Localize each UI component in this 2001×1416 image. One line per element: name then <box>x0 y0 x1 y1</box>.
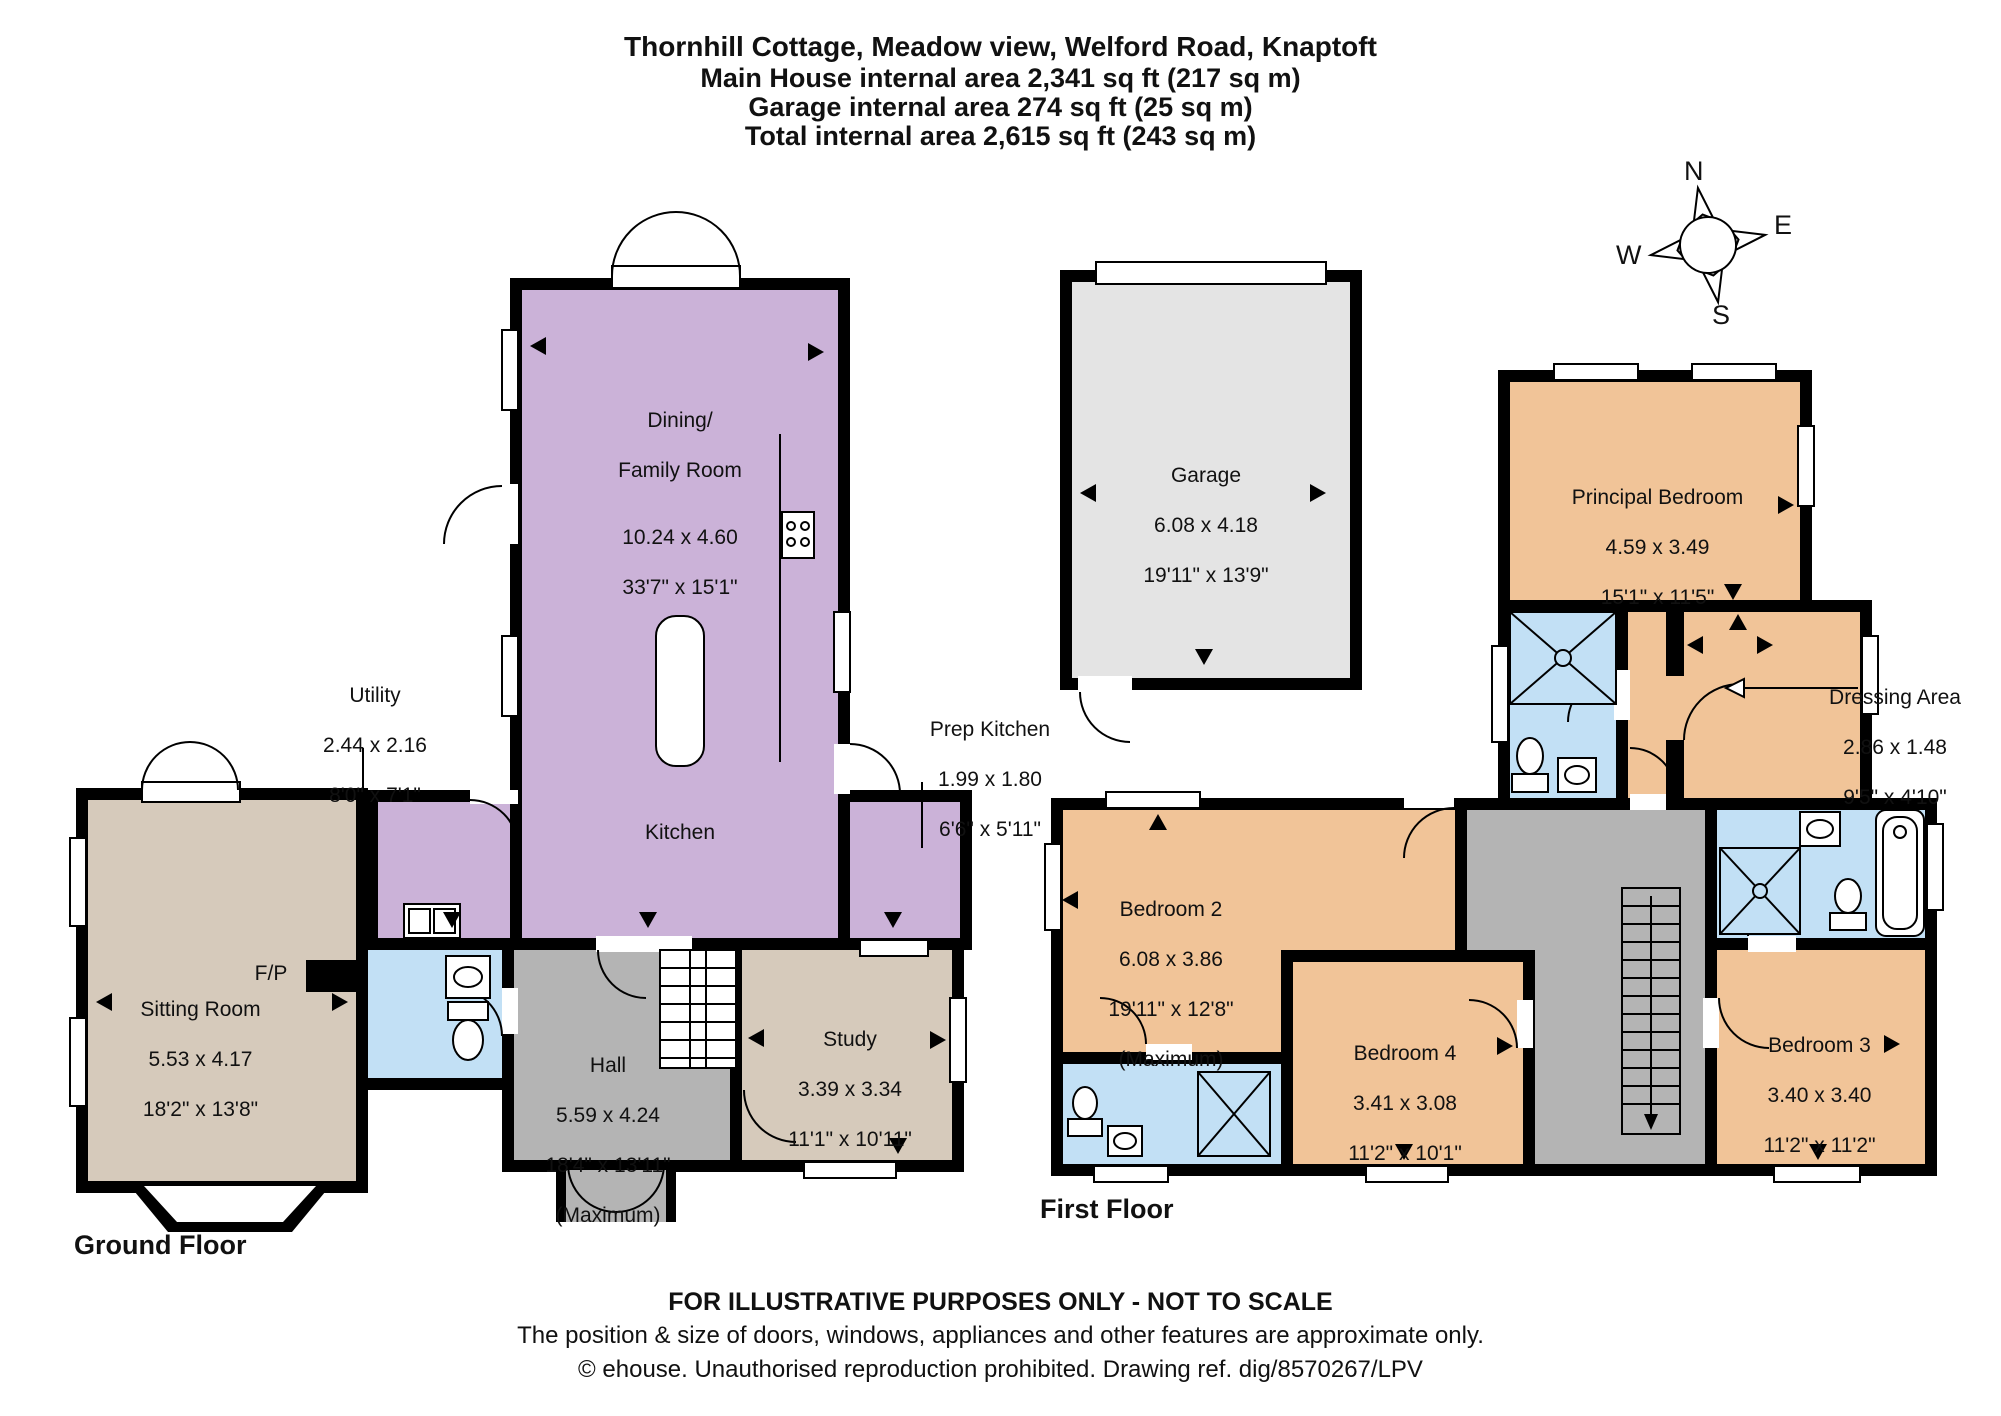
disclaimer-text: The position & size of doors, windows, a… <box>0 1322 2001 1350</box>
label-bedroom4: Bedroom 4 3.41 x 3.08 11'2" x 10'1" <box>1290 1016 1520 1191</box>
door-arc <box>1684 684 1740 740</box>
label-prep-kitchen: Prep Kitchen 1.99 x 1.80 6'6" x 5'11" <box>845 692 1135 867</box>
label-principal-bedroom: Principal Bedroom 4.59 x 3.49 15'1" x 11… <box>1515 460 1800 635</box>
window-icon <box>1927 824 1943 910</box>
label-dining: Dining/ Family Room <box>560 383 800 508</box>
label-fireplace: F/P <box>238 936 304 1011</box>
basin-icon <box>1558 758 1596 792</box>
door-arc <box>1404 808 1454 858</box>
disclaimer-title: FOR ILLUSTRATIVE PURPOSES ONLY - NOT TO … <box>0 1288 2001 1317</box>
door-arc <box>598 950 646 998</box>
label-bedroom2: Bedroom 2 6.08 x 3.86 19'11" x 12'8" (Ma… <box>1056 872 1286 1097</box>
stairs-first <box>1622 888 1680 1134</box>
label-study: Study 3.39 x 3.34 11'1" x 10'11" <box>740 1002 960 1177</box>
arrow-left-icon <box>530 337 546 355</box>
arrow-down-icon <box>639 912 657 928</box>
arrow-up-icon <box>1149 814 1167 830</box>
window-icon <box>1492 646 1508 742</box>
shower-room-fixtures <box>1510 612 1616 792</box>
label-dressing-area: Dressing Area 2.86 x 1.48 9'5" x 4'10" <box>1790 660 2000 835</box>
double-door-opening <box>142 782 240 802</box>
arrow-down-icon <box>884 912 902 928</box>
window-icon <box>1798 426 1814 506</box>
dressing-arrow-icon <box>1726 679 1744 697</box>
toilet-icon <box>448 1002 488 1060</box>
window-icon <box>1692 364 1776 380</box>
floorplan-page: Thornhill Cottage, Meadow view, Welford … <box>0 0 2001 1416</box>
cloakroom-fixtures <box>446 956 490 1060</box>
door-arc <box>470 800 518 848</box>
basin-icon <box>1108 1126 1142 1156</box>
window-icon <box>502 330 518 410</box>
label-bedroom3: Bedroom 3 3.40 x 3.40 11'2" x 11'2" <box>1702 1008 1937 1183</box>
garage-door-opening <box>1096 262 1326 284</box>
window-icon <box>502 636 518 716</box>
label-kitchen: Kitchen <box>560 795 800 870</box>
label-hall: Hall 5.59 x 4.24 18'4" x 13'11" (Maximum… <box>498 1028 718 1253</box>
toilet-icon <box>1512 738 1548 792</box>
arrow-left-icon <box>1687 636 1703 654</box>
double-door-opening <box>612 266 740 288</box>
label-garage: Garage 6.08 x 4.18 19'11" x 13'9" <box>1086 438 1326 613</box>
arrow-right-icon <box>1757 636 1773 654</box>
window-icon <box>860 940 928 956</box>
window-icon <box>70 838 86 926</box>
first-floor-label: First Floor <box>1040 1194 1174 1225</box>
arrow-right-icon <box>808 343 824 361</box>
window-icon <box>1094 1166 1168 1182</box>
window-icon <box>1554 364 1638 380</box>
stairs-down-arrow-icon <box>1644 1114 1658 1130</box>
window-icon <box>834 612 850 692</box>
copyright-text: © ehouse. Unauthorised reproduction proh… <box>0 1356 2001 1384</box>
door-arc <box>444 486 502 544</box>
kitchen-island <box>656 616 704 766</box>
toilet-icon <box>1830 879 1866 930</box>
ground-floor-label: Ground Floor <box>74 1230 246 1261</box>
basin-icon <box>446 956 490 998</box>
shower-icon <box>1720 848 1800 934</box>
arrow-down-icon <box>1195 649 1213 665</box>
label-dining-dims: 10.24 x 4.60 33'7" x 15'1" <box>555 500 805 625</box>
label-utility: Utility 2.44 x 2.16 8'0" x 7'1" <box>285 658 465 833</box>
bay-window <box>130 1186 330 1232</box>
